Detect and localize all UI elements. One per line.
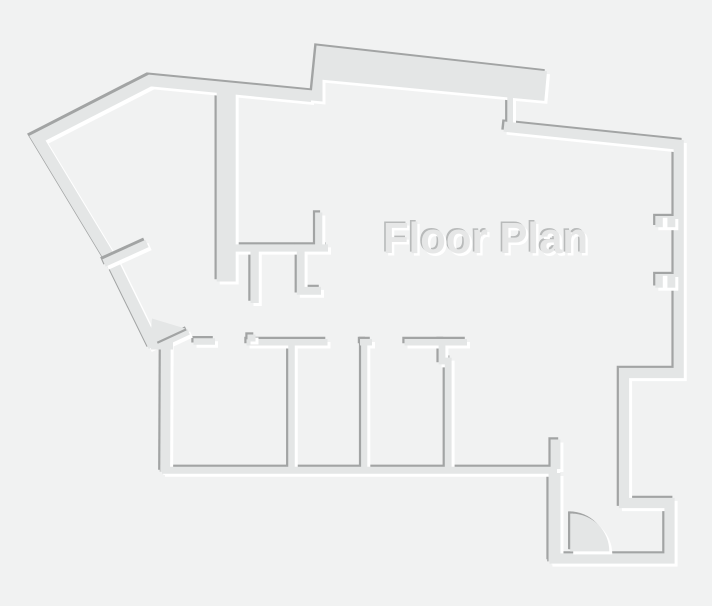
svg-text:Floor Plan: Floor Plan: [383, 214, 588, 263]
